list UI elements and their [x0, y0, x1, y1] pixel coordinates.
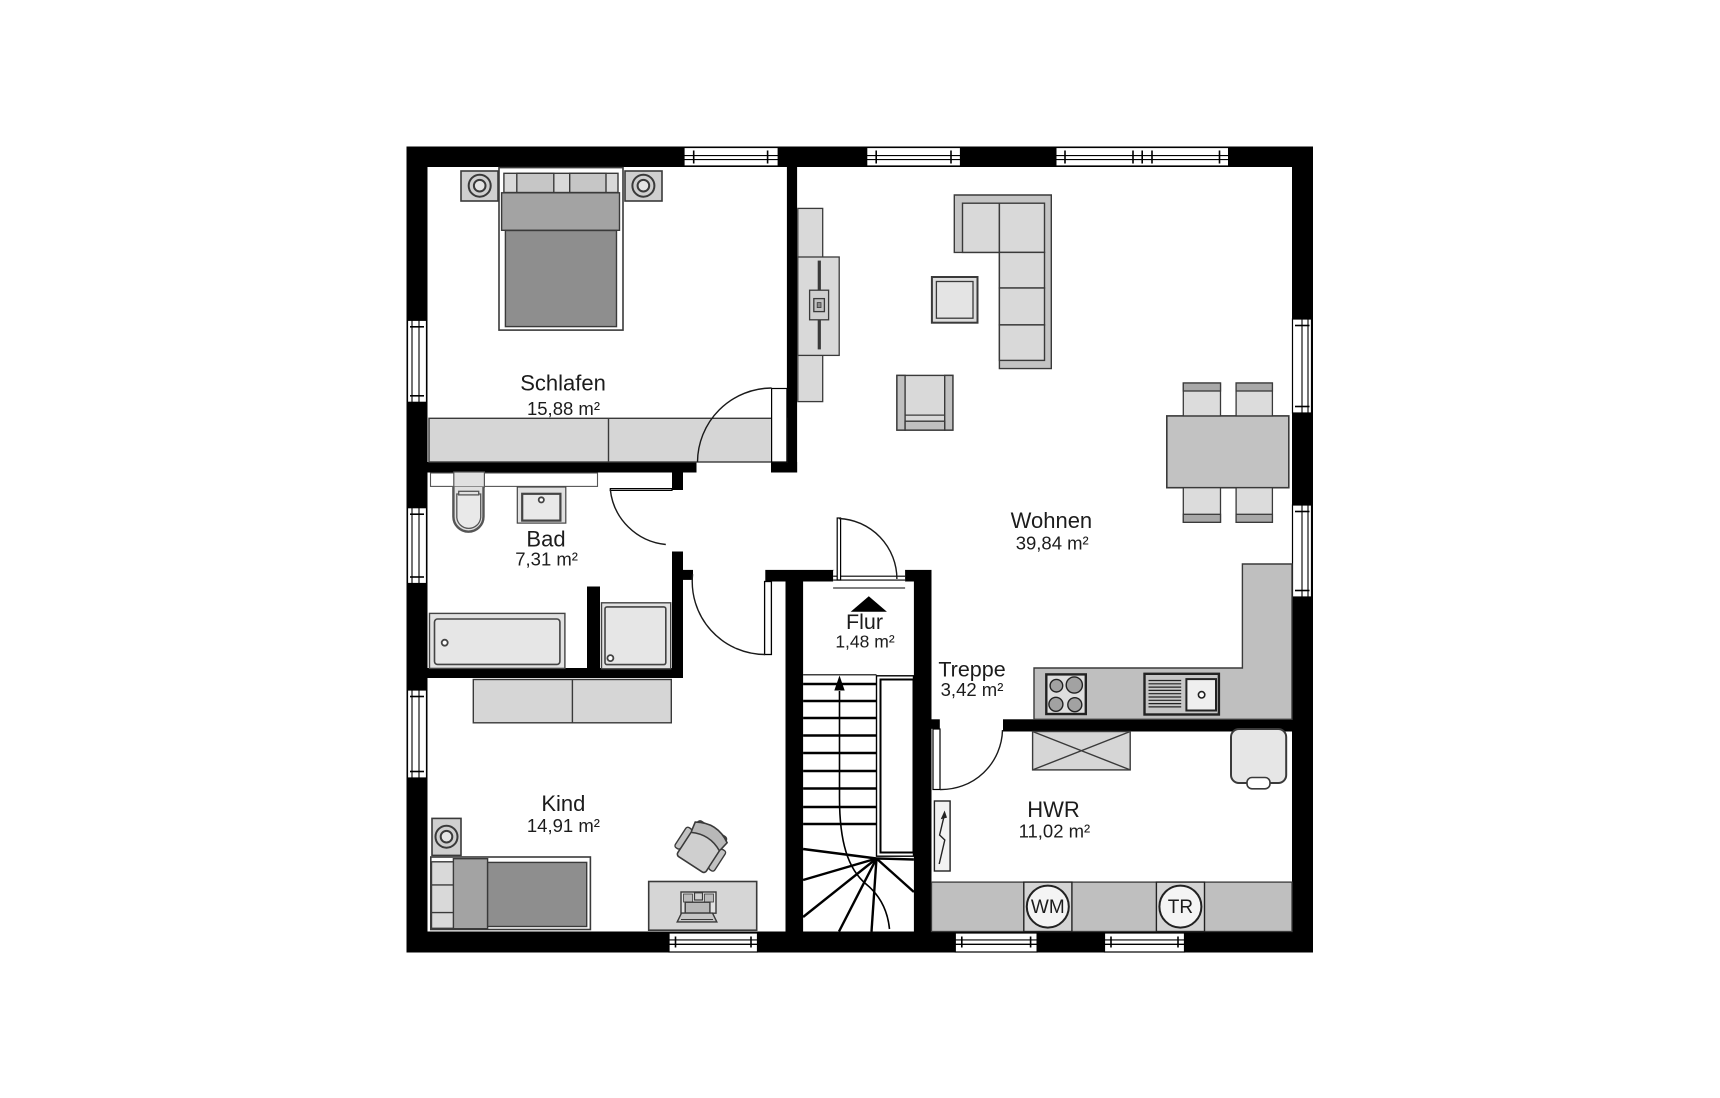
- svg-text:3,42 m²: 3,42 m²: [941, 679, 1004, 700]
- svg-text:Wohnen: Wohnen: [1011, 508, 1093, 533]
- svg-text:Schlafen: Schlafen: [520, 371, 606, 396]
- svg-text:14,91 m²: 14,91 m²: [527, 815, 600, 836]
- svg-text:39,84 m²: 39,84 m²: [1016, 532, 1089, 553]
- svg-text:TR: TR: [1168, 897, 1193, 918]
- svg-text:Treppe: Treppe: [938, 657, 1005, 681]
- svg-text:HWR: HWR: [1027, 797, 1080, 822]
- svg-text:15,88 m²: 15,88 m²: [527, 398, 600, 419]
- svg-text:WM: WM: [1031, 897, 1065, 918]
- svg-text:11,02 m²: 11,02 m²: [1019, 821, 1091, 842]
- svg-text:1,48 m²: 1,48 m²: [835, 631, 894, 651]
- svg-text:Kind: Kind: [541, 791, 585, 816]
- svg-text:7,31 m²: 7,31 m²: [515, 549, 578, 570]
- svg-text:Bad: Bad: [526, 526, 565, 551]
